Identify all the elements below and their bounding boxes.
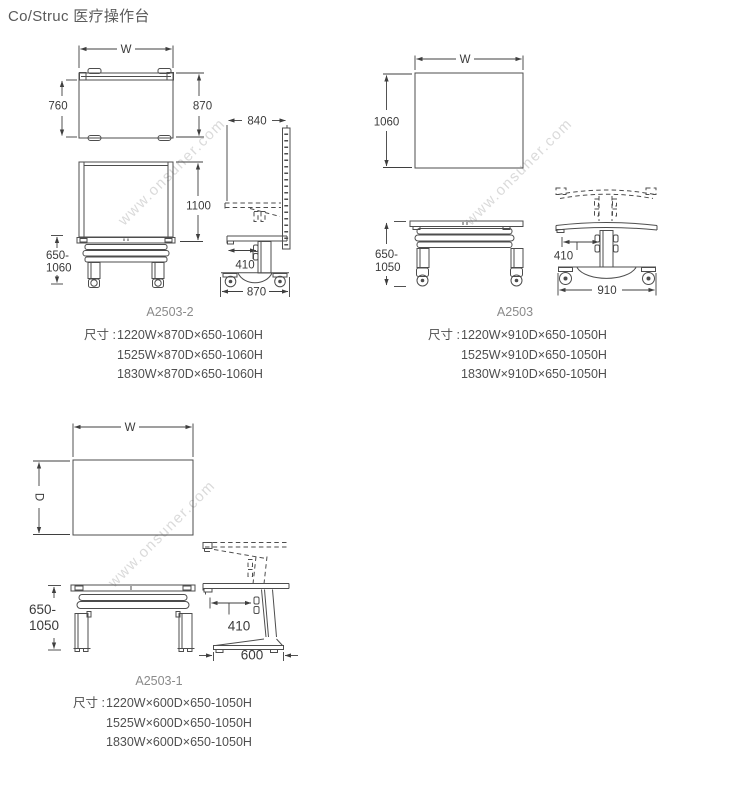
spec-row: 1525W×910D×650-1050H (428, 346, 607, 366)
spec-size-label-spacer (428, 365, 461, 385)
top-view (73, 460, 193, 535)
dim-panel-depth: 840 (247, 116, 266, 128)
spec-size-label: 尺寸 : (73, 694, 106, 714)
dim-top-depth-total: 870 (193, 101, 212, 113)
dim-height-max: 1050 (29, 618, 59, 633)
spec-block-a2503: 尺寸 : 1220W×910D×650-1050H 1525W×910D×650… (428, 326, 607, 385)
spec-value: 1830W×870D×650-1060H (117, 365, 263, 385)
spec-value: 1830W×910D×650-1050H (461, 365, 607, 385)
dim-top-depth: 1060 (374, 117, 400, 129)
drawing-a2503-1: W D 650- 1050 410 600 (20, 415, 305, 667)
spec-value: 1525W×910D×650-1050H (461, 346, 607, 366)
spec-row: 1525W×870D×650-1060H (84, 346, 263, 366)
dim-height-max: 1050 (375, 262, 401, 274)
side-view (556, 188, 657, 285)
dim-worktop-depth: 410 (235, 260, 254, 272)
dim-width-label: W (121, 44, 132, 56)
dim-top-depth: 760 (48, 101, 67, 113)
spec-size-label-spacer (73, 733, 106, 753)
front-view (77, 162, 175, 288)
spec-size-label-spacer (84, 365, 117, 385)
spec-value: 1525W×600D×650-1050H (106, 714, 252, 734)
dimension-lines (383, 56, 656, 296)
dim-height-min: 650- (375, 249, 398, 261)
dim-panel-height: 1100 (186, 201, 211, 213)
spec-value: 1220W×910D×650-1050H (461, 326, 607, 346)
top-view (415, 73, 523, 168)
spec-block-a2503-2: 尺寸 : 1220W×870D×650-1060H 1525W×870D×650… (84, 326, 263, 385)
dimension-lines (33, 424, 298, 662)
spec-size-label: 尺寸 : (84, 326, 117, 346)
spec-value: 1220W×870D×650-1060H (117, 326, 263, 346)
spec-value: 1525W×870D×650-1060H (117, 346, 263, 366)
spec-block-a2503-1: 尺寸 : 1220W×600D×650-1050H 1525W×600D×650… (73, 694, 252, 753)
front-view (71, 585, 195, 652)
dim-depth-label: D (33, 493, 45, 501)
page-title: Co/Struc 医疗操作台 (8, 5, 150, 26)
dimension-labels: W 1060 650- 1050 410 910 (374, 54, 617, 297)
spec-size-label-spacer (84, 346, 117, 366)
spec-size-label-spacer (428, 346, 461, 366)
dim-worktop-depth: 410 (228, 619, 251, 634)
dim-height-min: 650- (46, 250, 69, 262)
dim-base-depth: 600 (241, 648, 264, 663)
model-label-a2503-1: A2503-1 (74, 674, 244, 688)
spec-size-label: 尺寸 : (428, 326, 461, 346)
spec-size-label-spacer (73, 714, 106, 734)
spec-row: 尺寸 : 1220W×600D×650-1050H (73, 694, 252, 714)
drawing-a2503: W 1060 650- 1050 410 910 (370, 40, 665, 302)
model-label-a2503: A2503 (430, 305, 600, 319)
spec-row: 尺寸 : 1220W×870D×650-1060H (84, 326, 263, 346)
drawing-a2503-2: W 760 870 1100 650- 1060 840 410 870 (40, 40, 300, 302)
dim-worktop-depth: 410 (554, 251, 573, 263)
dim-height-min: 650- (29, 602, 56, 617)
spec-row: 1525W×600D×650-1050H (73, 714, 252, 734)
spec-row: 尺寸 : 1220W×910D×650-1050H (428, 326, 607, 346)
side-view (221, 128, 290, 287)
side-view (203, 543, 289, 653)
spec-row: 1830W×910D×650-1050H (428, 365, 607, 385)
top-view (79, 69, 174, 141)
spec-value: 1830W×600D×650-1050H (106, 733, 252, 753)
spec-sheet-page: Co/Struc 医疗操作台 www.onsuner.com www.onsun… (0, 0, 750, 795)
spec-value: 1220W×600D×650-1050H (106, 694, 252, 714)
dim-width-label: W (125, 422, 136, 434)
spec-row: 1830W×600D×650-1050H (73, 733, 252, 753)
dim-base-depth: 870 (247, 287, 266, 299)
dim-width-label: W (460, 54, 471, 66)
spec-row: 1830W×870D×650-1060H (84, 365, 263, 385)
dim-height-max: 1060 (46, 263, 72, 275)
dim-base-depth: 910 (597, 285, 616, 297)
front-view (410, 221, 523, 286)
model-label-a2503-2: A2503-2 (85, 305, 255, 319)
